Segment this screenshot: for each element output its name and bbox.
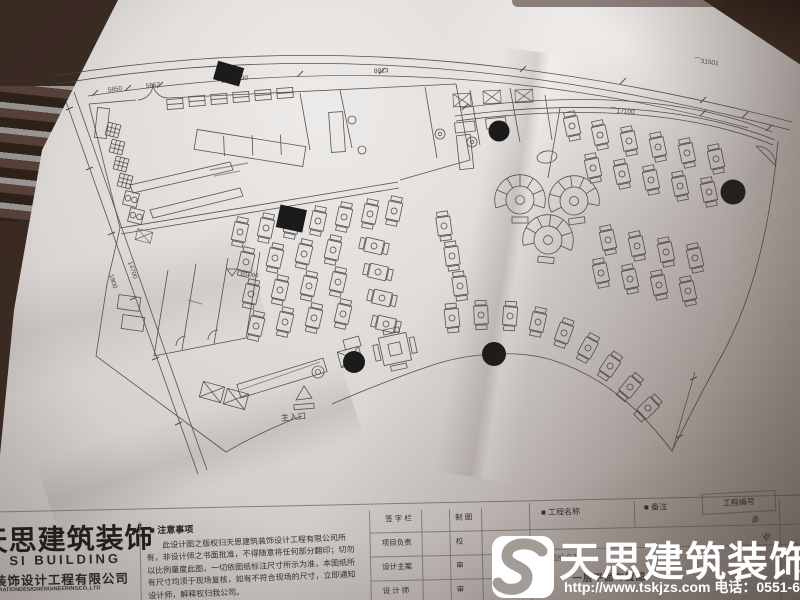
cell-specialty: 专 业 — [747, 513, 777, 548]
ink-markers — [213, 61, 745, 373]
table-line — [530, 544, 800, 551]
cell-project-no: 工程编号 — [701, 490, 776, 515]
cell-remarks: ■ 备注 — [644, 501, 667, 512]
cell-reviewed: 审 — [457, 584, 465, 595]
cell-project-lead: 项目负责 — [382, 537, 412, 549]
notes-header: ■ 注意事项 — [149, 522, 193, 536]
cell-proofread: 校 — [456, 536, 464, 547]
cell-approved: 审 — [456, 560, 464, 571]
notes-body: 此设计图之版权归天思建筑装饰设计工程有限公司所有，非设计师之书面批准，不得随意将… — [146, 532, 360, 600]
walls — [89, 84, 778, 452]
entrance-area: 主入口 — [237, 324, 420, 423]
photo-of-floor-plan: 5850 5863 8830 8813 ⌒31501 ⌒17100 1800 1… — [0, 0, 800, 600]
svg-text:5850: 5850 — [107, 85, 123, 94]
svg-text:⌒17100: ⌒17100 — [610, 106, 636, 116]
dimension-labels: 5850 5863 8830 8813 ⌒31501 ⌒17100 1800 1… — [107, 56, 719, 290]
table-border — [369, 511, 372, 600]
company-name-en: DECORATIONDESIGNENGINEERINGCO.,LTD — [0, 585, 100, 593]
cell-signature-column: 签 字 栏 — [385, 513, 412, 525]
cell-drawing-name: ■ 图纸名称 — [542, 552, 581, 564]
table-line — [779, 498, 782, 600]
svg-text:主入口: 主入口 — [280, 411, 306, 423]
dimension-lines — [66, 66, 772, 452]
title-block-strip: 天思建筑装饰 AN SI BUILDING 筑装饰设计工程有限公司 DECORA… — [0, 494, 800, 600]
cell-chief-designer: 设计主案 — [382, 561, 412, 573]
company-logo-en: AN SI BUILDING — [0, 551, 121, 569]
sheet-border — [54, 55, 792, 474]
cell-designer: 设 计 师 — [383, 585, 410, 597]
svg-text:8813: 8813 — [374, 67, 389, 75]
round-tables — [495, 172, 603, 265]
cell-project-name: ■ 工程名称 — [541, 506, 580, 518]
drawing-title: 一层平面布置图 — [572, 569, 646, 585]
table-line — [529, 503, 532, 600]
cell-drafting: 制 图 — [455, 512, 472, 523]
svg-text:⌒31501: ⌒31501 — [694, 56, 720, 67]
table-line — [634, 501, 636, 527]
